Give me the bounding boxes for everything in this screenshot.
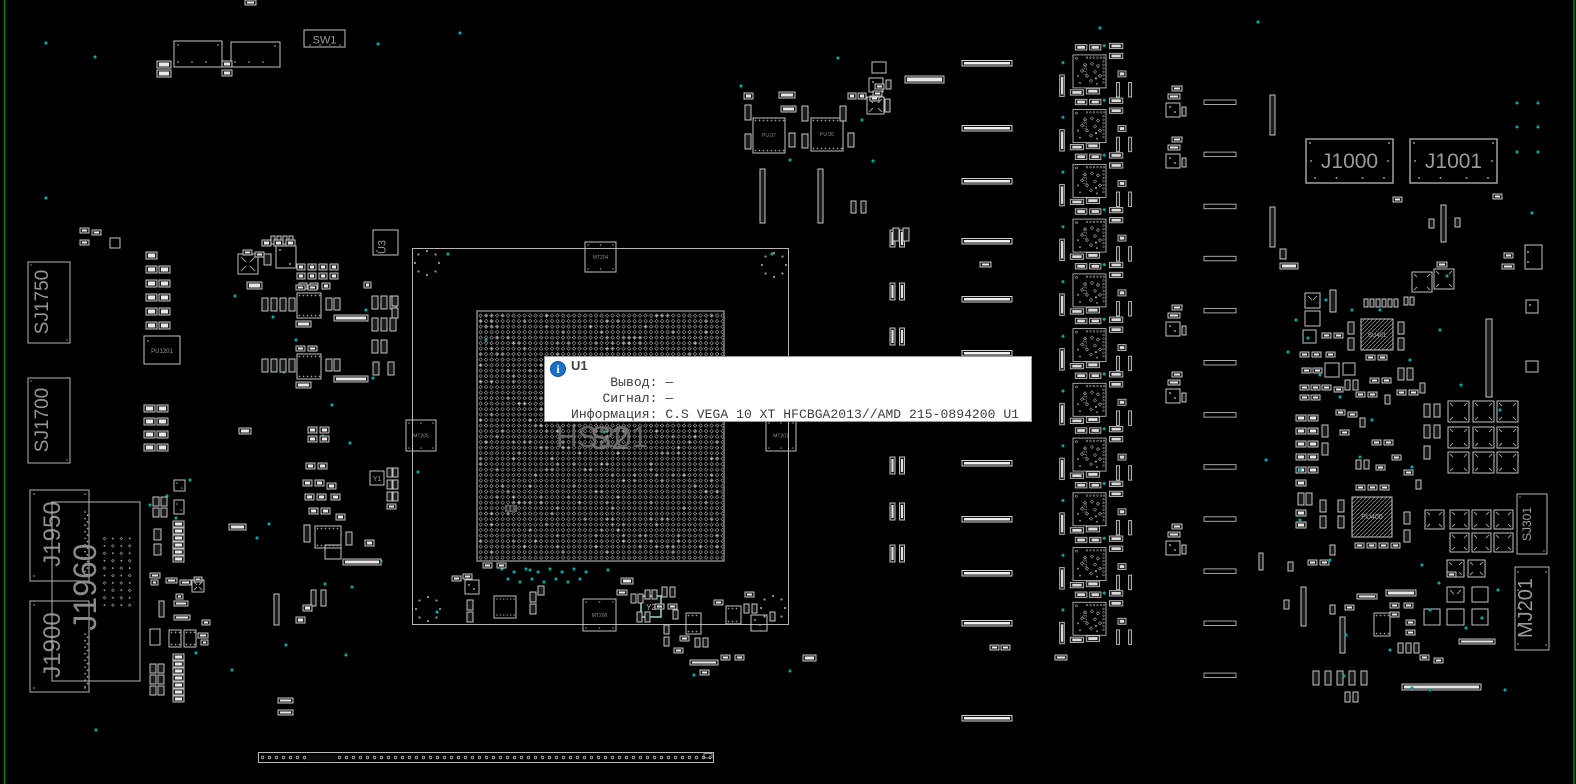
svg-text:PU.07: PU.07 [762, 133, 776, 139]
svg-text:SU401: SU401 [1368, 333, 1387, 339]
svg-text:SJ1700: SJ1700 [32, 388, 53, 452]
svg-text:201: 201 [598, 421, 648, 454]
svg-text:U3: U3 [377, 240, 389, 254]
svg-text:J1000: J1000 [1321, 150, 1378, 173]
svg-text:PU400: PU400 [1361, 514, 1383, 521]
svg-text:MT201: MT201 [773, 434, 789, 440]
svg-text:J1960: J1960 [67, 543, 103, 630]
svg-text:MT204: MT204 [593, 255, 609, 261]
svg-text:J1001: J1001 [1425, 150, 1482, 173]
svg-text:MT205: MT205 [413, 434, 429, 440]
svg-text:PU1201: PU1201 [151, 349, 173, 355]
svg-text:MT206: MT206 [592, 613, 608, 619]
svg-text:SW1: SW1 [313, 35, 337, 47]
svg-text:Y1: Y1 [373, 476, 382, 483]
svg-text:SJ301: SJ301 [1520, 507, 1534, 541]
svg-text:SJ1750: SJ1750 [32, 270, 53, 334]
svg-text:PU.06: PU.06 [820, 132, 834, 138]
